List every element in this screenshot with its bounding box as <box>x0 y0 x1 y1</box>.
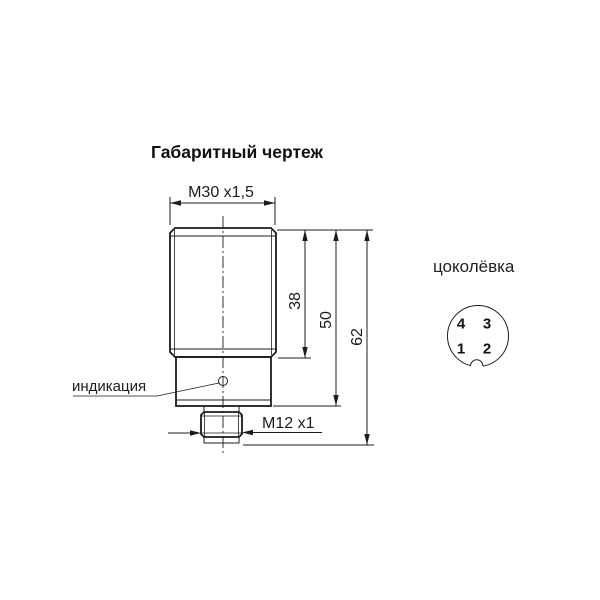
pinout-title: цоколёвка <box>433 257 515 276</box>
drawing-canvas: Габаритный чертеж M30 x1,5 индикация <box>0 0 600 600</box>
pin-4-label: 4 <box>457 316 466 333</box>
pin-3-label: 3 <box>483 316 491 333</box>
dimensional-drawing-page: Габаритный чертеж M30 x1,5 индикация <box>0 0 600 600</box>
dimension-62-label: 62 <box>349 328 366 346</box>
connector-outline <box>201 406 242 443</box>
thread-top-label: M30 x1,5 <box>188 184 254 201</box>
page-title: Габаритный чертеж <box>151 142 324 162</box>
pin-2-label: 2 <box>483 341 491 358</box>
sensor-housing-outline <box>176 357 271 406</box>
pin-1-label: 1 <box>457 341 465 358</box>
indication-label: индикация <box>72 378 146 395</box>
dimension-m30 <box>170 197 275 225</box>
thread-connector-label: M12 x1 <box>262 415 315 432</box>
dimension-38-label: 38 <box>287 292 304 310</box>
dimension-50-label: 50 <box>318 311 335 329</box>
